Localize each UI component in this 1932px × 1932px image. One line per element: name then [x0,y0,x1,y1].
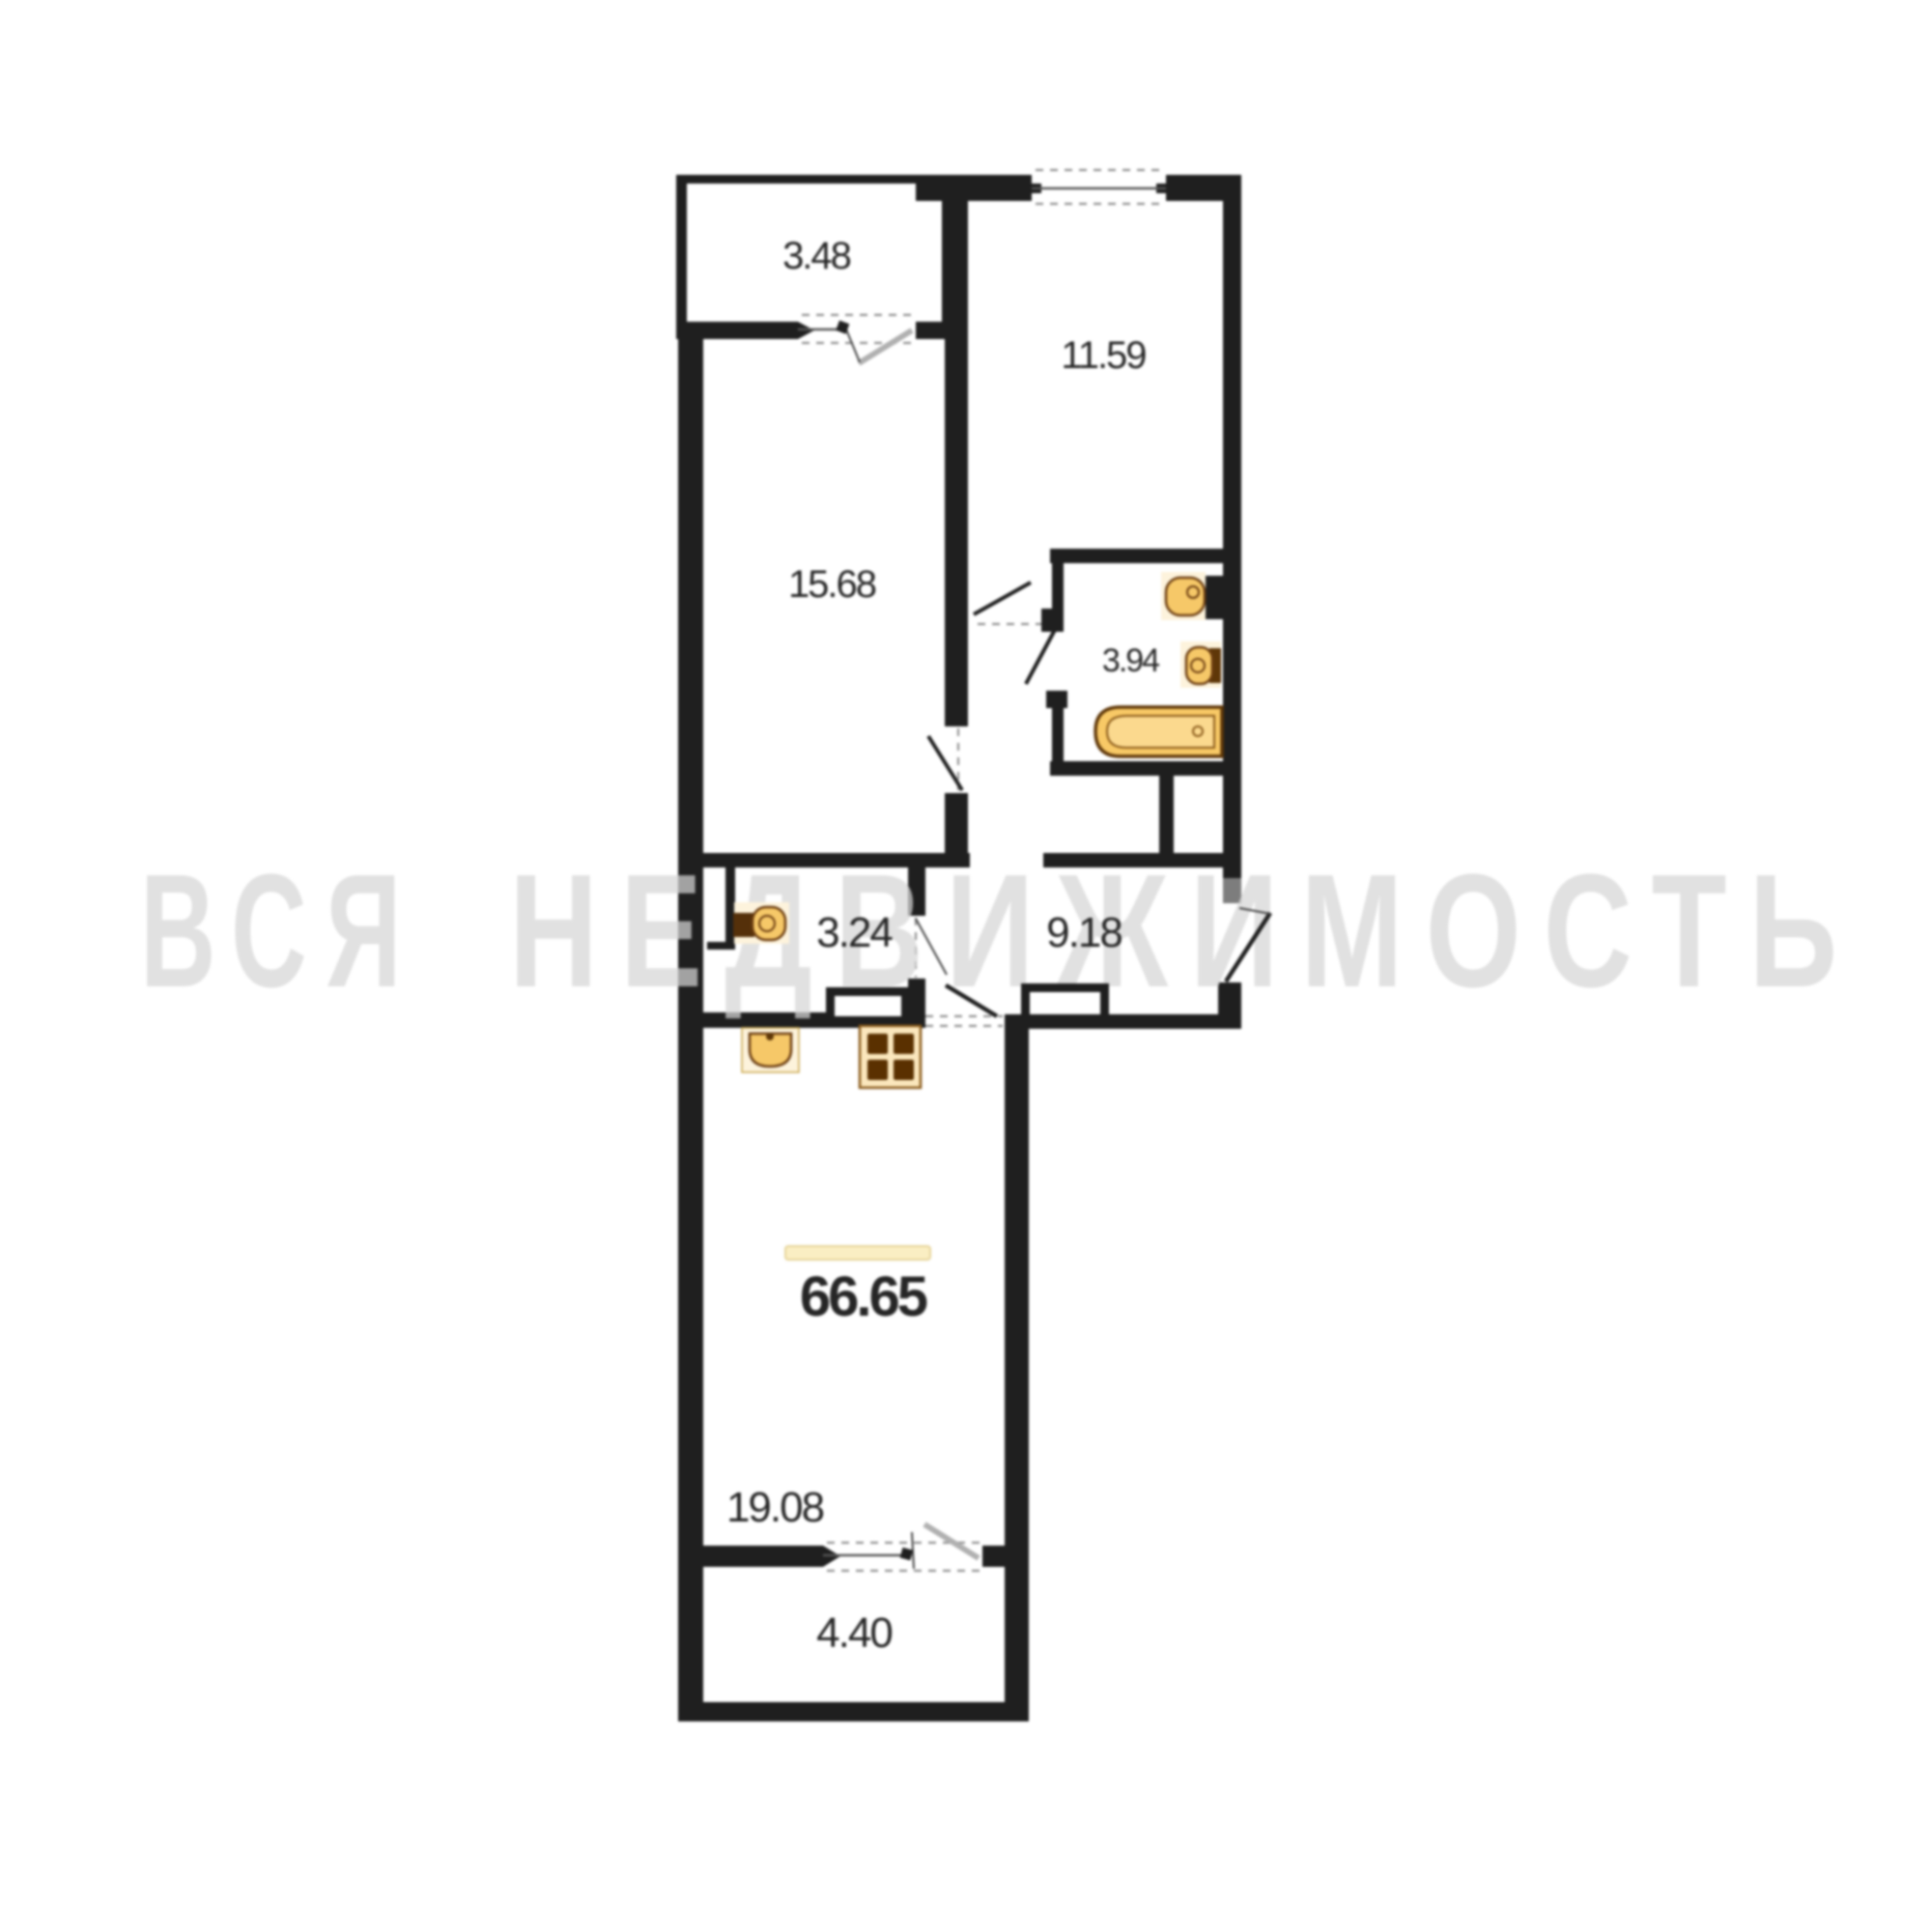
svg-text:66.65: 66.65 [800,1265,927,1328]
svg-text:3.48: 3.48 [782,235,851,277]
svg-text:4.40: 4.40 [816,1609,892,1657]
svg-text:3.24: 3.24 [816,909,893,956]
svg-text:3.94: 3.94 [1102,642,1159,679]
svg-text:11.59: 11.59 [1061,334,1146,377]
svg-text:15.68: 15.68 [788,563,876,606]
svg-text:ВСЯ: ВСЯ [140,841,420,1021]
svg-text:19.08: 19.08 [726,1484,824,1531]
svg-text:НЕДВИЖИМОСТЬ: НЕДВИЖИМОСТЬ [509,841,1860,1021]
svg-text:9.18: 9.18 [1046,909,1122,956]
